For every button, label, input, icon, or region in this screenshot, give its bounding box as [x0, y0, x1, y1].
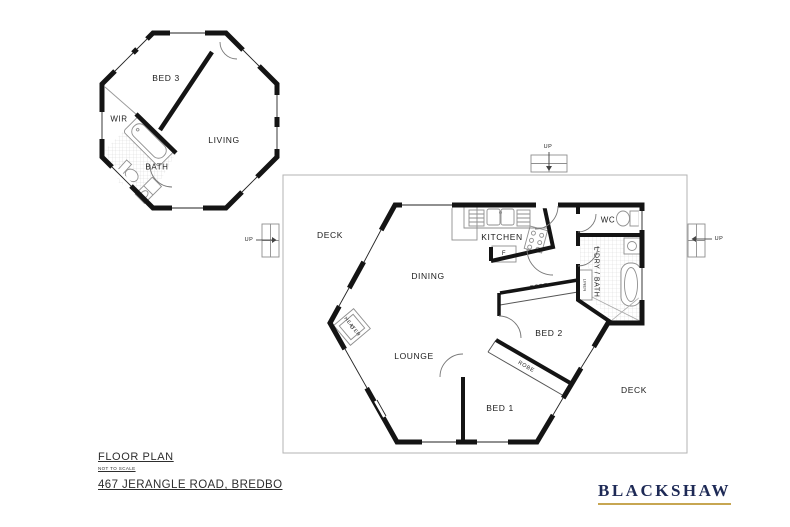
room-label-bed3: BED 3: [152, 73, 180, 83]
room-label-deck-right: DECK: [621, 385, 647, 395]
plan-title: FLOOR PLAN: [98, 451, 282, 463]
room-label-deck-left: DECK: [317, 230, 343, 240]
room-label-wc: WC: [601, 216, 616, 225]
room-label-bed2: BED 2: [535, 328, 563, 338]
room-label-living: LIVING: [208, 135, 239, 145]
up-label-right: UP: [715, 236, 724, 242]
floor-plan-drawing: [0, 0, 790, 527]
floor-plan-page: BED 3 WIR BATH LIVING DECK DECK KITCHEN …: [0, 0, 790, 527]
fridge-label: F: [502, 251, 506, 257]
stairs-top-icon: [531, 152, 567, 172]
room-label-linen: LINEN: [583, 279, 588, 292]
room-label-wir: WIR: [110, 115, 127, 124]
room-label-bath: BATH: [145, 163, 168, 172]
bathtub2-icon: [621, 263, 641, 306]
room-label-lounge: LOUNGE: [394, 351, 434, 361]
octagon-windows: [102, 33, 277, 208]
plan-scale-note: NOT TO SCALE: [98, 466, 282, 471]
kitchen-sink-icon: [487, 209, 514, 225]
wc-toilet-icon: [617, 211, 640, 226]
plan-address: 467 JERANGLE ROAD, BREDBO: [98, 479, 282, 491]
washing-machine-icon: [624, 238, 640, 254]
room-label-kitchen: KITCHEN: [481, 232, 523, 242]
room-label-laundry-bath: L'DRY / BATH: [593, 247, 600, 298]
up-label-top: UP: [544, 144, 553, 150]
wir-divider: [105, 87, 137, 115]
title-block: FLOOR PLAN NOT TO SCALE 467 JERANGLE ROA…: [98, 451, 282, 491]
up-label-left: UP: [245, 237, 254, 243]
stairs-left-icon: [256, 224, 279, 257]
room-label-bed1: BED 1: [486, 403, 514, 413]
octagon-unit-drawing: [102, 33, 277, 208]
room-label-dining: DINING: [411, 271, 444, 281]
blackshaw-logo: BLACKSHAW: [598, 481, 731, 505]
stairs-right-icon: [688, 224, 712, 257]
